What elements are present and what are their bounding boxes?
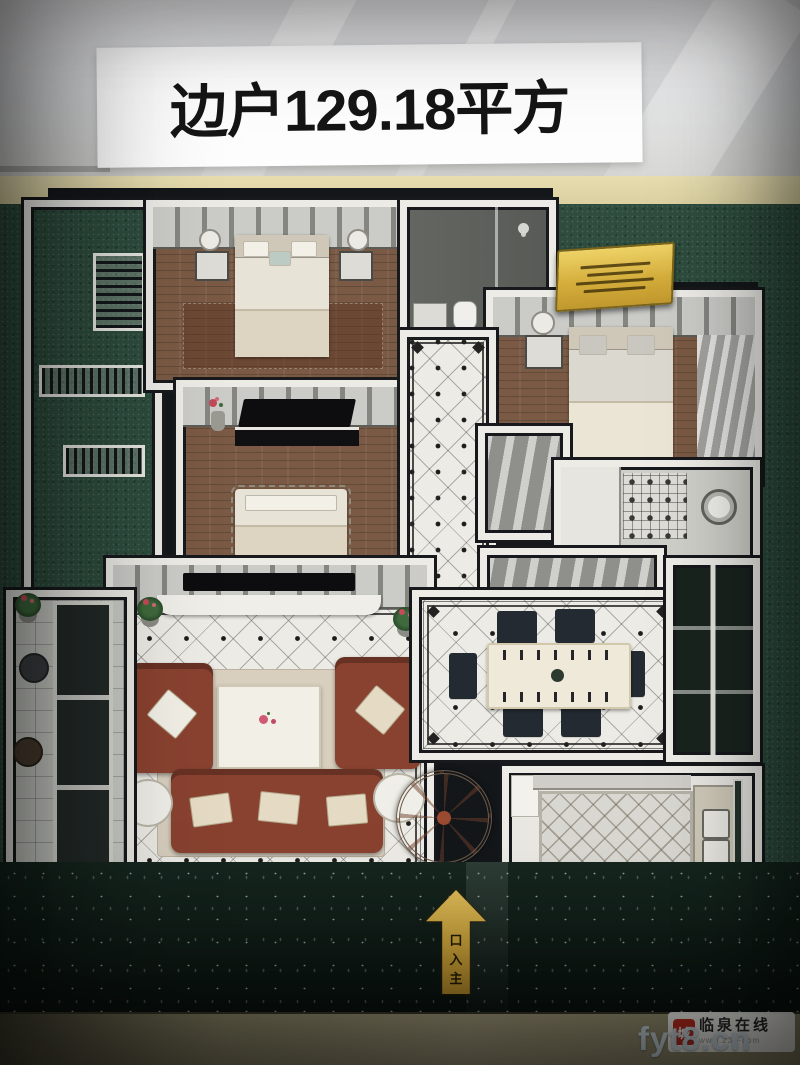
pillow [627, 335, 655, 355]
place-settings [503, 650, 615, 660]
dining-chair [497, 611, 537, 645]
accent-pillow [269, 251, 291, 266]
flower-vase [211, 411, 225, 431]
pillow [245, 495, 337, 511]
sofa [171, 769, 383, 853]
closet [697, 335, 755, 473]
dining-chair [449, 653, 477, 699]
pillow [579, 335, 607, 355]
armchair [129, 663, 213, 773]
tv [238, 399, 356, 427]
balcony-chair [13, 737, 43, 767]
potted-plant [137, 597, 163, 621]
kitchen-counter [533, 775, 691, 790]
glass-case-edge [0, 166, 110, 172]
living-room [106, 558, 434, 894]
throw-pillow [326, 793, 368, 826]
centerpiece [551, 669, 564, 682]
mosaic-tile-wall [623, 473, 687, 539]
plaque-text-line [576, 277, 654, 285]
pillow [291, 241, 317, 257]
blanket [569, 401, 673, 461]
watermark-overlay: fyt8.cn [638, 1020, 751, 1058]
table-flowers [259, 715, 268, 724]
media-console [157, 595, 381, 615]
bed [569, 327, 673, 461]
banner: 边户129.18平方 [96, 42, 642, 168]
laundry-cabinet [561, 467, 621, 559]
flowers [209, 399, 217, 407]
window-mullion [57, 785, 109, 790]
balcony-left [24, 200, 162, 618]
pillow [243, 241, 269, 257]
glossy-base [0, 862, 800, 1014]
dining-balcony [666, 558, 760, 762]
window-mullion [673, 690, 753, 694]
living-balcony [6, 590, 134, 894]
balcony-chair [19, 653, 49, 683]
balcony-railing [93, 253, 145, 331]
bedroom-middle [176, 380, 420, 580]
dining-chair [555, 609, 595, 643]
dining-table [487, 643, 631, 709]
entrance-arrow-char: 主 [449, 969, 462, 988]
nightstand [339, 251, 373, 281]
window-mullion [711, 565, 716, 755]
model-photo: 口 入 主 边户129.18平方 城 临泉在线 www.23⋯com fyt8.… [0, 0, 800, 1065]
master-bedroom [146, 200, 418, 390]
throw-pillow [258, 791, 301, 825]
potted-plant [15, 593, 41, 617]
bath-vanity [413, 303, 447, 331]
nightstand [525, 335, 563, 369]
plaque-text-line [583, 285, 646, 292]
unit-plaque [555, 242, 675, 313]
medallion-center [437, 811, 451, 825]
bed [235, 235, 329, 357]
throw-pillow [189, 792, 233, 827]
balcony-railing [39, 365, 145, 397]
table-lamp [347, 229, 369, 251]
throw-pillow [355, 685, 406, 735]
entrance-arrow: 口 入 主 [426, 890, 486, 994]
coffee-table [217, 685, 321, 769]
throw-pillow [147, 689, 198, 739]
balcony-glass-door [53, 601, 113, 881]
washing-machine [701, 489, 737, 525]
entrance-arrow-char: 口 [449, 931, 462, 950]
armchair [335, 657, 421, 769]
entrance-arrow-shape: 口 入 主 [426, 890, 486, 994]
shower-head-icon [518, 223, 529, 234]
kitchen-sink [702, 809, 730, 839]
bed [235, 489, 347, 567]
window-mullion [673, 626, 753, 630]
blanket [235, 309, 329, 357]
banner-text: 边户129.18平方 [169, 61, 569, 149]
wall-tv [183, 573, 355, 591]
toilet [453, 301, 477, 331]
floor-medallion [396, 770, 492, 866]
balcony-railing [63, 445, 145, 477]
plaque-text-line [587, 269, 644, 276]
table-lamp [531, 311, 555, 335]
plaque-text-line [580, 261, 650, 269]
entrance-arrow-char: 入 [449, 950, 462, 969]
tv-cabinet [235, 427, 359, 446]
nightstand [195, 251, 229, 281]
place-settings [503, 692, 615, 702]
table-lamp [199, 229, 221, 251]
dining-room [412, 590, 684, 760]
window-mullion [57, 695, 109, 700]
